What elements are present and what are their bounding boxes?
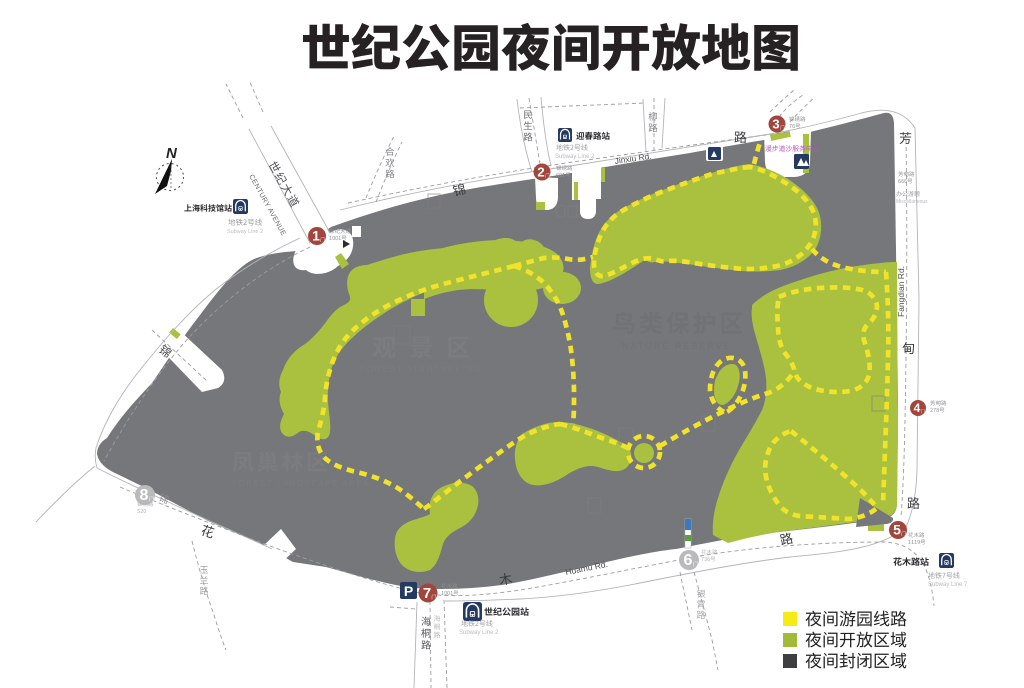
svg-text:Subway Line 7: Subway Line 7	[928, 582, 968, 588]
svg-text:5: 5	[893, 522, 901, 538]
svg-text:7: 7	[423, 585, 431, 602]
svg-text:1: 1	[312, 228, 320, 244]
svg-text:4: 4	[914, 401, 921, 415]
svg-text:Miscellaneous: Miscellaneous	[896, 199, 928, 205]
svg-text:3: 3	[772, 116, 779, 131]
svg-text:Subway Line 2: Subway Line 2	[555, 154, 595, 160]
svg-text:P: P	[404, 583, 413, 599]
svg-text:Subway Line 2: Subway Line 2	[459, 630, 499, 636]
svg-text:Fangdian Rd.: Fangdian Rd.	[896, 266, 906, 317]
svg-text:N: N	[166, 145, 178, 162]
svg-text:FOREST SIGHTSEEING: FOREST SIGHTSEEING	[360, 364, 482, 374]
svg-text:NATURE RESERVE: NATURE RESERVE	[622, 341, 732, 351]
svg-text:2: 2	[537, 164, 544, 179]
svg-text:Subway Line 2: Subway Line 2	[227, 229, 263, 235]
svg-text:6: 6	[684, 552, 693, 569]
svg-text:FOREST LANDSCAPE AREA: FOREST LANDSCAPE AREA	[232, 479, 370, 488]
